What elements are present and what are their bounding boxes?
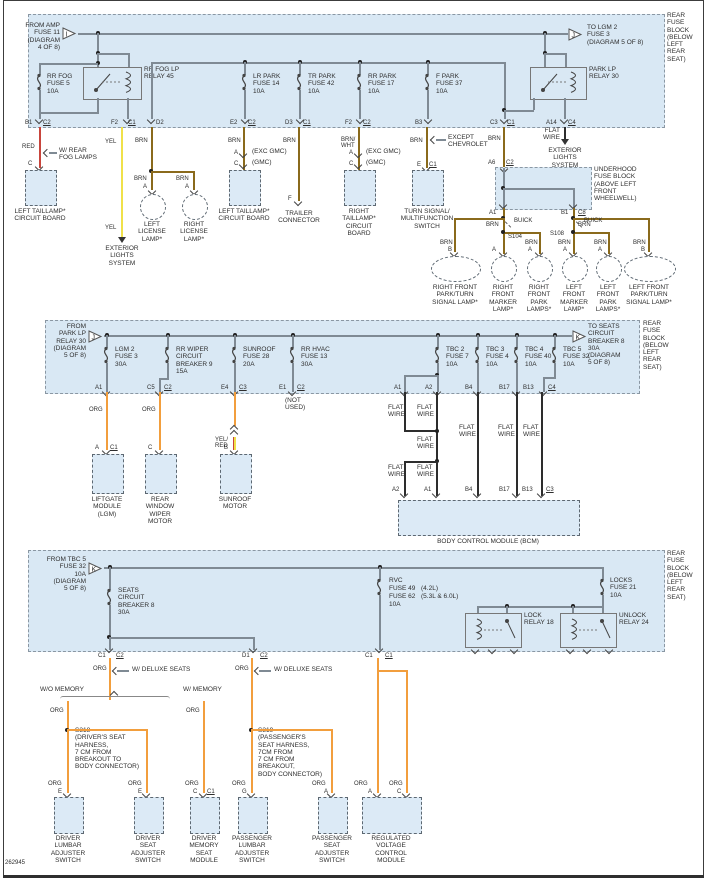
wo-memory-note: W/O MEMORY (40, 686, 92, 693)
pin-label: B3 (415, 120, 422, 126)
note-line (259, 670, 271, 672)
wire-color-label: BRN (488, 136, 501, 142)
gmc-note: (GMC) (252, 159, 282, 166)
flat-wire-label: FLAT WIRE (417, 404, 434, 419)
rr-wiper-cb-label: RR WIPER CIRCUIT BREAKER 9 15A (176, 346, 213, 375)
wire (572, 606, 574, 613)
tbc2-fuse-label: TBC 2 FUSE 7 10A (446, 346, 469, 368)
driver-memory-label: DRIVER MEMORY SEAT MODULE (184, 835, 224, 864)
pin-label: A (528, 247, 532, 253)
left-front-park-lamps (596, 256, 622, 282)
f-park-fuse-label: F PARK FUSE 37 10A (436, 73, 462, 95)
pin-label: B (224, 445, 228, 451)
pin-label: A (368, 789, 372, 795)
tbc3-fuse-label: TBC 3 FUSE 4 10A (486, 346, 509, 368)
offpage-arrow-icon: K (572, 330, 587, 343)
wire-color-label: ORG (185, 781, 199, 787)
pin-label: A2 (425, 385, 432, 391)
park-lamp-relay (530, 67, 587, 100)
driver-memory-seat-module (190, 797, 220, 834)
wire-color-label: BRN (135, 138, 148, 144)
exc-gmc-note: (EXC GMC) (366, 148, 406, 155)
pin-label: C4 (548, 385, 556, 391)
pin-label: E4 (221, 385, 228, 391)
rf-marker-label: RIGHT FRONT MARKER LAMP* (488, 284, 518, 313)
gmc-note: (GMC) (366, 159, 396, 166)
wire (377, 670, 408, 672)
passenger-lumbar-switch (238, 797, 268, 834)
wire-color-label: ORG (142, 407, 156, 413)
pin-label: C2 (43, 120, 51, 126)
passenger-lumbar-label: PASSENGER LUMBAR ADJUSTER SWITCH (229, 835, 275, 864)
passenger-seat-label: PASSENGER SEAT ADJUSTER SWITCH (309, 835, 355, 864)
wire (109, 567, 111, 590)
wire-color-label: ORG (186, 708, 200, 714)
rf-park-label: RIGHT FRONT PARK LAMPS* (524, 284, 554, 313)
park-relay-label: PARK LP RELAY 30 (589, 66, 629, 81)
from-amp-fuse-11-label: FROM AMP FUSE 11 (DIAGRAM 4 OF 8) (24, 22, 60, 51)
pin-label: D3 (285, 120, 293, 126)
flat-wire-label: FLAT WIRE (417, 464, 434, 479)
pin-label: C (193, 789, 197, 795)
pin-label: C (349, 161, 353, 167)
wire (106, 392, 108, 450)
pin-label: C2 (164, 385, 172, 391)
trailer-connector-label: TRAILER CONNECTOR (276, 210, 322, 225)
left-taillamp-label: LEFT TAILLAMP* CIRCUIT BOARD (12, 208, 68, 223)
buick-note: BUICK (584, 218, 608, 225)
wire (151, 127, 153, 171)
svg-text:I: I (66, 32, 68, 39)
flat-wire-label: FLAT WIRE (388, 404, 405, 419)
wire (151, 62, 506, 64)
wire (565, 53, 567, 68)
driver-lumbar-switch (54, 797, 84, 834)
pin-label: C8 (578, 210, 586, 216)
wire (454, 218, 456, 252)
pin-label: A (563, 247, 567, 253)
wire (251, 729, 333, 731)
wire (436, 392, 438, 496)
rear-fuse-block-label: REAR FUSE BLOCK (BELOW LEFT REAR SEAT) (643, 320, 677, 371)
pin-label: B1 (561, 210, 568, 216)
wire-color-label: ORG (235, 666, 249, 672)
wire (564, 127, 566, 139)
exterior-lights-label-2: EXTERIOR LIGHTS SYSTEM (547, 147, 583, 169)
right-front-parkturn-lamp (431, 256, 481, 282)
page-bottom-rule (3, 875, 704, 878)
pin-label: A1 (489, 210, 496, 216)
wire (298, 127, 300, 201)
w-memory-note: W/ MEMORY (183, 686, 231, 693)
pin-label: C2 (116, 653, 124, 659)
left-taillamp-circuit-board-2 (229, 170, 261, 206)
wire (455, 218, 505, 220)
s319-note: S319 (PASSENGER'S SEAT HARNESS, 7CM FROM… (258, 727, 336, 778)
wire (39, 90, 41, 119)
pin-label: A (598, 247, 602, 253)
wire (379, 595, 381, 650)
wire (251, 658, 253, 730)
wire-color-label: BRN (440, 240, 453, 246)
rr-fog-lamp-relay (83, 67, 142, 100)
note-line (49, 152, 57, 154)
body-control-module (398, 500, 580, 536)
pin-label: E (417, 162, 421, 168)
pin-label: C1 (98, 653, 106, 659)
wire-color-label: BRN (594, 240, 607, 246)
wire-color-label: BRN (486, 222, 499, 228)
wire (406, 670, 408, 793)
liftgate-label: LIFTGATE MODULE (LGM) (81, 496, 133, 518)
pin-label: A2 (392, 487, 399, 493)
wire (541, 392, 543, 496)
wire-color-label: BRN (525, 240, 538, 246)
wire (648, 218, 650, 252)
wire-color-label: BRN (558, 240, 571, 246)
wire (477, 392, 479, 496)
wire-color-label: BRN (228, 138, 241, 144)
pin-label: B4 (465, 487, 472, 493)
wire-color-label: BRN/ WHT (341, 137, 355, 149)
flat-wire-label: FLAT WIRE (459, 424, 476, 439)
rvc-fuse49-label: FUSE 49 (389, 585, 415, 592)
flat-wire-label: FLAT WIRE (417, 436, 434, 451)
lr-park-fuse-label: LR PARK FUSE 14 10A (253, 73, 280, 95)
wire (104, 335, 572, 337)
pin-label: C1 (365, 653, 373, 659)
rvc-module-label: REGULATED VOLTAGE CONTROL MODULE (358, 835, 424, 864)
unlock-relay (560, 613, 617, 648)
pin-label: C1 (207, 789, 215, 795)
pin-label: C5 (147, 385, 155, 391)
wire-color-label: ORG (389, 781, 403, 787)
not-used-note: (NOT USED) (285, 397, 315, 412)
wire-color-label: ORG (93, 666, 107, 672)
wire (506, 606, 508, 613)
wire-color-label: RED (22, 144, 35, 150)
seats-cb-label: SEATS CIRCUIT BREAKER 8 30A (118, 587, 156, 616)
driver-seat-switch (134, 797, 164, 834)
w-rear-fog-note: W/ REAR FOG LAMPS (59, 147, 101, 162)
rvc-53l-label: (5.3L & 6.0L) (421, 593, 458, 600)
driver-seat-label: DRIVER SEAT ADJUSTER SWITCH (128, 835, 168, 864)
pin-label: F2 (111, 120, 118, 126)
pin-label: A (185, 184, 189, 190)
pin-label: C2 (506, 160, 514, 166)
wire (203, 701, 205, 793)
pin-label: B13 (522, 487, 533, 493)
rvc-10a-label: 10A (389, 601, 401, 608)
wire (67, 701, 69, 730)
wire (97, 98, 99, 112)
pin-label: A6 (488, 160, 495, 166)
wire-color-label: ORG (50, 708, 64, 714)
lock-relay (465, 613, 522, 648)
wire (505, 232, 541, 234)
rear-wiper-label: REAR WINDOW WIPER MOTOR (139, 496, 181, 525)
pin-label: A (234, 150, 238, 156)
pin-label: C4 (568, 120, 576, 126)
left-license-lamp (140, 194, 166, 220)
pin-label: A (143, 184, 147, 190)
wire (477, 606, 604, 608)
left-taillamp-label-2: LEFT TAILLAMP* CIRCUIT BOARD (214, 208, 274, 223)
right-taillamp-label: RIGHT TAILLAMP* CIRCUIT BOARD (337, 208, 381, 237)
wire (426, 127, 428, 168)
turn-signal-label: TURN SIGNAL/ MULTIFUNCTION SWITCH (397, 208, 457, 230)
w-deluxe-note: W/ DELUXE SEATS (132, 666, 202, 673)
driver-lumbar-label: DRIVER LUMBAR ADJUSTER SWITCH (48, 835, 88, 864)
pin-label: C (397, 789, 401, 795)
from-park-relay-label: FROM PARK LP RELAY 30 (DIAGRAM 5 OF 8) (48, 323, 86, 359)
svg-text:J: J (572, 33, 576, 40)
wire (67, 731, 69, 793)
wire (167, 363, 169, 378)
lf-marker-label: LEFT FRONT MARKER LAMP* (559, 284, 589, 313)
wire (477, 606, 479, 613)
left-front-parkturn-lamp (624, 256, 676, 282)
sunroof-motor-label: SUNROOF MOTOR (204, 496, 266, 511)
wiring-diagram-page: REAR FUSE BLOCK (BELOW LEFT REAR SEAT) F… (0, 0, 707, 887)
wire (151, 171, 195, 173)
right-license-label: RIGHT LICENSE LAMP* (177, 221, 211, 243)
pin-label: A (349, 150, 353, 156)
tbc5-fuse-label: TBC 5 FUSE 32 10A (563, 346, 589, 368)
wire (602, 606, 604, 613)
pin-label: B17 (499, 487, 510, 493)
wire-color-label: BRN (283, 138, 296, 144)
lf-parkturn-label: LEFT FRONT PARK/TURN SIGNAL LAMP* (620, 284, 678, 306)
pin-label: C2 (248, 120, 256, 126)
wire (504, 62, 506, 110)
pin-label: C (28, 161, 32, 167)
lgm2-fuse-label: LGM 2 FUSE 3 30A (115, 346, 138, 368)
pin-label: C1 (110, 445, 118, 451)
pin-label: C3 (239, 385, 247, 391)
liftgate-module (92, 454, 124, 494)
pin-label: C3 (490, 120, 498, 126)
pin-label: E2 (230, 120, 237, 126)
pin-label: C3 (546, 487, 554, 493)
locks-fuse-label: LOCKS FUSE 21 10A (610, 577, 642, 599)
tr-park-fuse-label: TR PARK FUSE 42 10A (308, 73, 336, 95)
wire (128, 53, 130, 68)
pin-label: B4 (465, 385, 472, 391)
flat-wire-label: FLAT WIRE (523, 424, 540, 439)
rvc-42l-label: (4.2L) (421, 585, 438, 592)
wire-color-label: ORG (232, 781, 246, 787)
wire (575, 232, 610, 234)
wire (234, 392, 236, 426)
wire (146, 729, 148, 793)
pin-label: C2 (297, 385, 305, 391)
to-lgm-label: TO LGM 2 FUSE 3 (DIAGRAM 5 OF 8) (587, 24, 645, 46)
wire-color-label: BRN (633, 240, 646, 246)
pin-label: E1 (279, 385, 286, 391)
flat-wire-label: FLAT WIRE (540, 127, 560, 142)
s318-note: S318 (DRIVER'S SEAT HARNESS, 7 CM FROM B… (75, 727, 155, 771)
wire-color-label: BRN (410, 138, 423, 144)
wire-color-label: YEL (105, 225, 116, 231)
wire (78, 33, 568, 35)
exc-gmc-note: (EXC GMC) (252, 148, 292, 155)
pin-label: B13 (523, 385, 534, 391)
wire (504, 110, 534, 112)
wire (503, 188, 575, 190)
wire (104, 567, 603, 569)
splice-dot (435, 429, 439, 433)
rvc-label: RVC (389, 577, 403, 584)
wire (39, 127, 41, 168)
flat-wire-label: FLAT WIRE (498, 424, 515, 439)
lf-park-label: LEFT FRONT PARK LAMPS* (593, 284, 623, 313)
splice-label: S104 (508, 234, 522, 240)
pin-label: C2 (260, 653, 268, 659)
wire (151, 62, 153, 119)
pin-label: D2 (156, 120, 164, 126)
lock-relay-label: LOCK RELAY 18 (524, 612, 560, 627)
pin-label: C2 (363, 120, 371, 126)
flat-wire-label: FLAT WIRE (388, 464, 405, 479)
right-front-marker-lamp (491, 256, 517, 282)
wire (39, 63, 98, 65)
rear-fuse-block-label: REAR FUSE BLOCK (BELOW LEFT REAR SEAT) (667, 12, 701, 63)
note-line (436, 139, 446, 141)
wire (404, 430, 438, 432)
diagram-code: 262945 (5, 860, 25, 867)
wire (404, 375, 437, 377)
wire (39, 112, 99, 114)
left-license-label: LEFT LICENSE LAMP* (135, 221, 169, 243)
offpage-arrow-icon: J (88, 330, 103, 343)
pin-label: C1 (507, 120, 515, 126)
pin-label: C (148, 445, 152, 451)
pin-label: B17 (499, 385, 510, 391)
offpage-arrow-icon: K (88, 562, 103, 575)
underhood-label: UNDERHOOD FUSE BLOCK (ABOVE LEFT FRONT W… (594, 166, 660, 202)
rr-fog-relay-label: RR FOG LP RELAY 45 (144, 66, 184, 81)
wire (544, 53, 566, 55)
wire-color-label: BRN (134, 176, 147, 182)
pin-label: D1 (242, 653, 250, 659)
offpage-arrow-icon: I (62, 27, 77, 40)
exterior-lights-label: EXTERIOR LIGHTS SYSTEM (104, 245, 140, 267)
offpage-arrow-icon: J (568, 28, 583, 41)
rr-hvac-fuse-label: RR HVAC FUSE 13 30A (301, 346, 330, 368)
wire (67, 729, 148, 731)
from-tbc5-label: FROM TBC 5 FUSE 32 10A (DIAGRAM 5 OF 8) (42, 556, 86, 592)
turn-signal-switch (412, 170, 444, 206)
svg-text:K: K (92, 567, 97, 574)
wire (109, 605, 111, 650)
pin-label: A (95, 445, 99, 451)
passenger-seat-switch (318, 797, 348, 834)
left-front-marker-lamp (562, 256, 588, 282)
buick-note: BUICK (514, 218, 538, 225)
regulated-voltage-control-module (362, 797, 422, 834)
rf-parkturn-label: RIGHT FRONT PARK/TURN SIGNAL LAMP* (426, 284, 484, 306)
right-front-park-lamps (527, 256, 553, 282)
bcm-label: BODY CONTROL MODULE (BCM) (398, 538, 578, 545)
pin-label: C1 (128, 120, 136, 126)
pin-label: B1 (25, 120, 32, 126)
svg-text:J: J (92, 335, 96, 342)
pin-label: A14 (546, 120, 557, 126)
rvc-fuse62-label: FUSE 62 (389, 593, 415, 600)
pin-label: A1 (95, 385, 102, 391)
wire (503, 127, 505, 167)
wire-color-label: ORG (354, 781, 368, 787)
svg-text:K: K (576, 335, 581, 342)
wire (121, 127, 123, 237)
except-chevrolet-note: EXCEPT CHEVROLET (448, 134, 492, 149)
wire (404, 461, 438, 463)
pin-label: F2 (345, 120, 352, 126)
pin-label: A1 (424, 487, 431, 493)
rear-window-wiper-motor (145, 454, 177, 494)
sunroof-motor (220, 454, 252, 494)
pin-label: F (288, 196, 292, 202)
splice-label: S108 (550, 231, 564, 237)
pin-label: A (492, 247, 496, 253)
wire-color-label: ORG (312, 781, 326, 787)
rear-fuse-block-label: REAR FUSE BLOCK (BELOW LEFT REAR SEAT) (667, 550, 701, 601)
pin-label: E (58, 789, 62, 795)
wire-color-label: YEL (105, 139, 116, 145)
right-taillamp-circuit-board (344, 170, 376, 206)
rr-fog-fuse-label: RR FOG FUSE 5 10A (47, 73, 72, 95)
wire (533, 98, 535, 110)
sunroof-fuse-label: SUNROOF FUSE 28 20A (243, 346, 276, 368)
pin-label: C1 (303, 120, 311, 126)
wire (516, 392, 518, 496)
wire-color-label: ORG (128, 781, 142, 787)
rr-park-fuse-label: RR PARK FUSE 17 10A (368, 73, 396, 95)
wire (331, 729, 333, 793)
w-deluxe-note: W/ DELUXE SEATS (274, 666, 344, 673)
to-seats-cb-label: TO SEATS CIRCUIT BREAKER 8 30A (DIAGRAM … (588, 323, 634, 367)
wire-color-label: ORG (89, 407, 103, 413)
wire (377, 658, 379, 793)
wire (109, 637, 255, 639)
wire-color-label: ORG (48, 781, 62, 787)
wire (159, 392, 161, 450)
left-taillamp-circuit-board (25, 170, 57, 206)
note-line (117, 670, 129, 672)
unlock-relay-label: UNLOCK RELAY 24 (619, 612, 659, 627)
pin-label: C (234, 161, 238, 167)
wire (251, 731, 253, 793)
pin-label: C1 (385, 653, 393, 659)
wire-color-label: BRN (176, 176, 189, 182)
right-license-lamp (182, 194, 208, 220)
wire (97, 53, 129, 55)
